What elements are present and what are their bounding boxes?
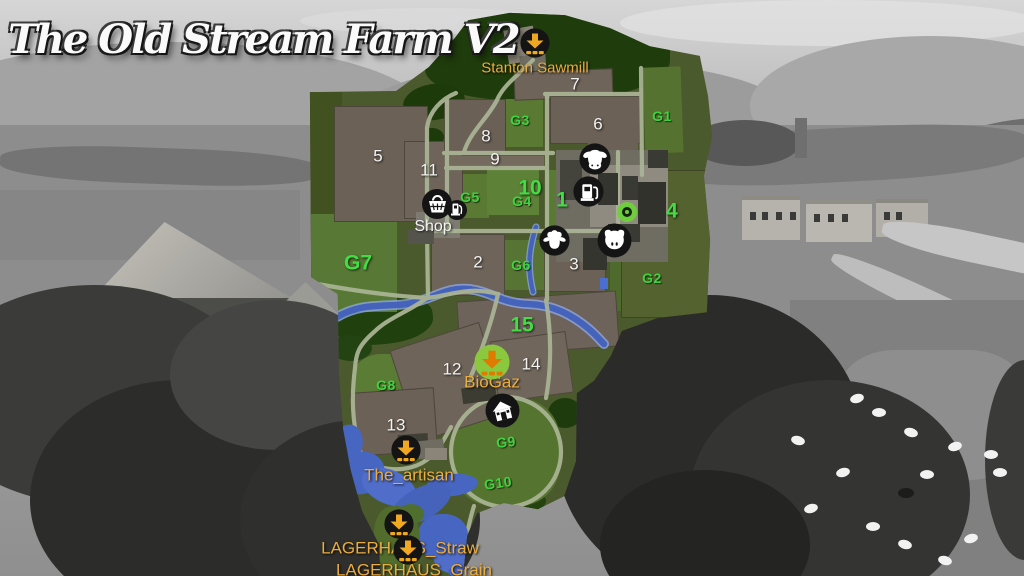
field-label-2: 2 [473, 254, 482, 271]
field-label-13: 13 [387, 417, 406, 434]
field-label-8: 8 [481, 128, 490, 145]
field-label-4: 4 [666, 201, 678, 222]
field-label-G7: G7 [344, 253, 372, 274]
field-label-7: 7 [570, 76, 579, 93]
field-label-12: 12 [443, 361, 462, 378]
field-label-11: 11 [420, 162, 438, 179]
field-label-9: 9 [490, 151, 499, 168]
labels-and-icons-layer: Stanton Sawmill Shop BioGaz The_artisan … [0, 0, 1024, 576]
field-label-15: 15 [510, 315, 533, 336]
field-label-G3: G3 [510, 113, 530, 127]
field-label-6: 6 [593, 116, 602, 133]
shop-icon [421, 187, 469, 230]
field-label-G1: G1 [652, 109, 672, 123]
field-label-1: 1 [556, 190, 568, 211]
pig-icon [597, 223, 632, 263]
unload-icon-artisan [391, 435, 421, 470]
field-label-5: 5 [373, 148, 382, 165]
field-label-G6: G6 [511, 258, 531, 272]
barn-icon [485, 393, 520, 433]
sheep-icon [539, 225, 570, 261]
field-label-G8: G8 [376, 378, 396, 392]
field-label-14: 14 [522, 356, 541, 373]
unload-icon-stanton [520, 28, 550, 63]
fuel-pump-icon [573, 176, 604, 212]
screenshot-root: The Old Stream Farm V2 Stanton Sawmill S… [0, 0, 1024, 576]
map-marker-icon [617, 202, 637, 222]
field-label-G10: G10 [483, 474, 513, 492]
field-label-10: 10 [518, 178, 541, 199]
cow-icon [579, 143, 611, 180]
unload-icon-lagerhaus-grain [393, 535, 423, 570]
biogaz-unload-icon [474, 344, 510, 385]
field-label-G9: G9 [495, 434, 516, 450]
field-label-3: 3 [569, 256, 578, 273]
field-label-G2: G2 [642, 271, 662, 285]
